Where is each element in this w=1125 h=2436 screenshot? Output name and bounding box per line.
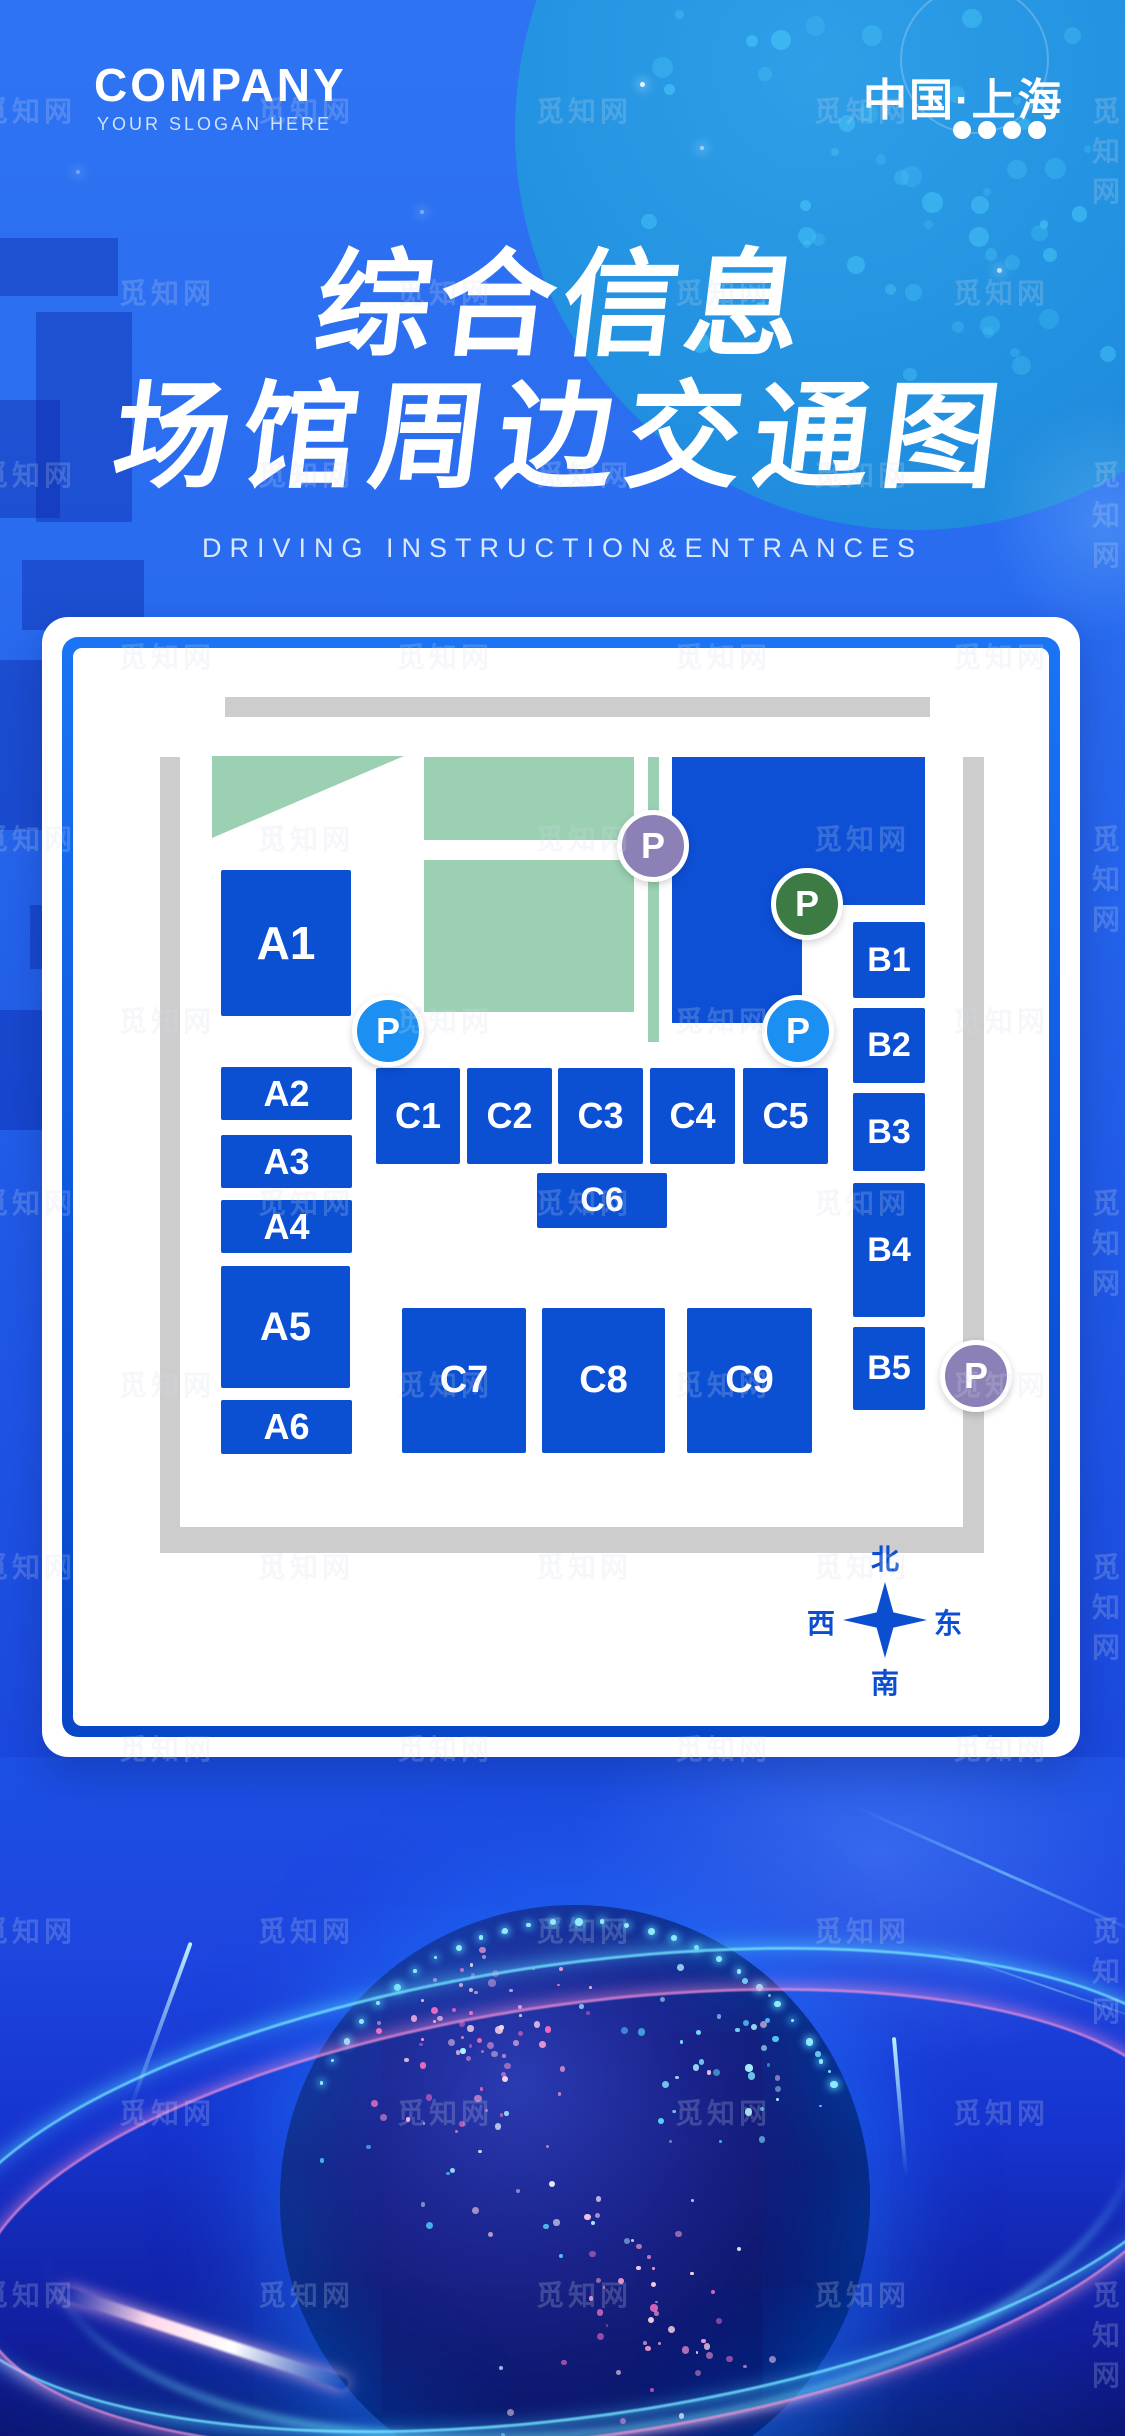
pattern-dot — [800, 200, 811, 211]
pattern-dot — [983, 188, 991, 196]
sparkle-dot — [420, 210, 424, 214]
sparkle-dot — [76, 170, 80, 174]
pattern-dot — [1072, 206, 1088, 222]
pattern-dot — [922, 192, 943, 213]
pattern-dot — [969, 227, 989, 247]
location-label: 中国·上海 — [863, 64, 1064, 128]
map-card-inner — [73, 648, 1049, 1726]
globe-rim-dot — [502, 1928, 508, 1934]
pattern-dot — [641, 214, 656, 229]
pattern-dot — [1040, 220, 1048, 228]
watermark-text: 觅知网 — [1092, 1546, 1125, 1666]
watermark-text: 觅知网 — [1092, 1182, 1125, 1302]
globe-rim-dot — [550, 1919, 556, 1925]
company-slogan: YOUR SLOGAN HERE — [97, 114, 332, 135]
light-streak-thin — [854, 1805, 1125, 1942]
location-dots — [953, 121, 1046, 139]
globe-rim-dot — [479, 1935, 483, 1939]
header: COMPANY YOUR SLOGAN HERE 中国·上海 — [0, 0, 1125, 170]
title-line2: 场馆周边交通图 — [0, 378, 1125, 496]
pattern-dot — [894, 170, 909, 185]
globe-rim-dot — [526, 1923, 531, 1928]
pattern-dot — [924, 220, 933, 229]
title-block: 综合信息 场馆周边交通图 DRIVING INSTRUCTION&ENTRANC… — [0, 246, 1125, 564]
globe-rim-dot — [575, 1918, 583, 1926]
poster: COMPANY YOUR SLOGAN HERE 中国·上海 综合信息 场馆周边… — [0, 0, 1125, 2436]
pattern-dot — [971, 196, 989, 214]
map-card-blue-border — [62, 637, 1060, 1737]
title-line1: 综合信息 — [0, 246, 1125, 364]
watermark-text: 觅知网 — [1092, 818, 1125, 938]
subtitle: DRIVING INSTRUCTION&ENTRANCES — [0, 533, 1125, 564]
company-logo: COMPANY — [94, 58, 347, 112]
map-card — [42, 617, 1080, 1757]
globe-scene — [0, 1757, 1125, 2436]
